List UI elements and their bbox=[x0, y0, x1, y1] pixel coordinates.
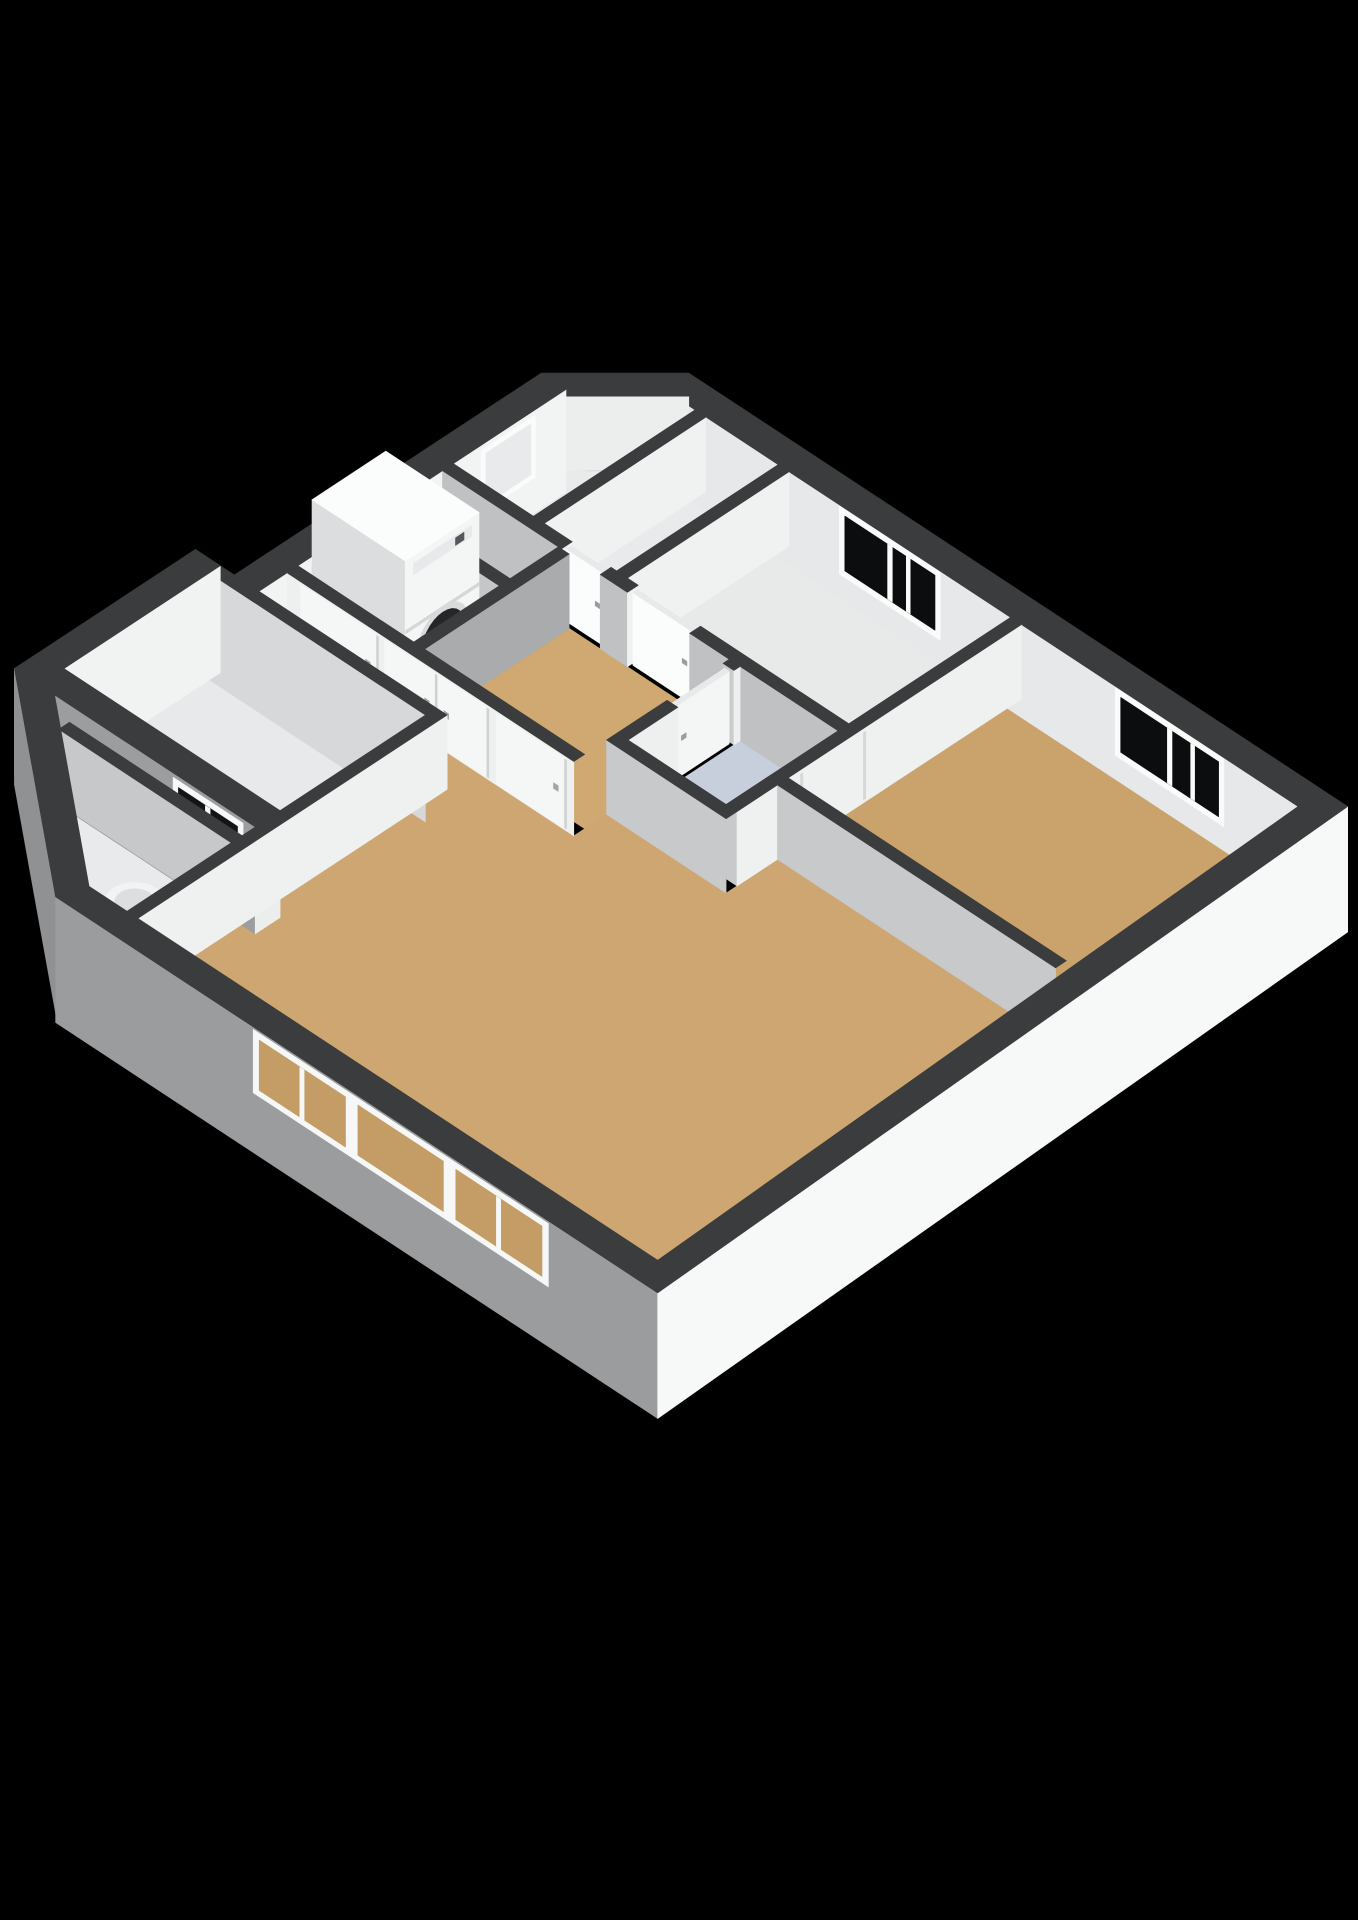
wall-bathroom-west-a-front bbox=[734, 667, 740, 745]
floorplan-3d-render bbox=[0, 0, 1358, 1920]
living-door-seam-d bbox=[565, 759, 567, 829]
window-living-mullion-a bbox=[300, 1067, 304, 1120]
window-bedroom-1-mullion bbox=[888, 544, 893, 602]
window-bedroom-2-sash bbox=[1191, 743, 1195, 800]
window-living-mullion-b bbox=[496, 1196, 500, 1249]
window-bedroom-2-mullion bbox=[1167, 728, 1172, 786]
window-bedroom-1-sash bbox=[906, 556, 910, 614]
door-bedroom-2-seam-a bbox=[863, 731, 865, 800]
floorplan-viewport bbox=[0, 0, 1358, 1920]
living-door-seam-c bbox=[487, 708, 489, 778]
